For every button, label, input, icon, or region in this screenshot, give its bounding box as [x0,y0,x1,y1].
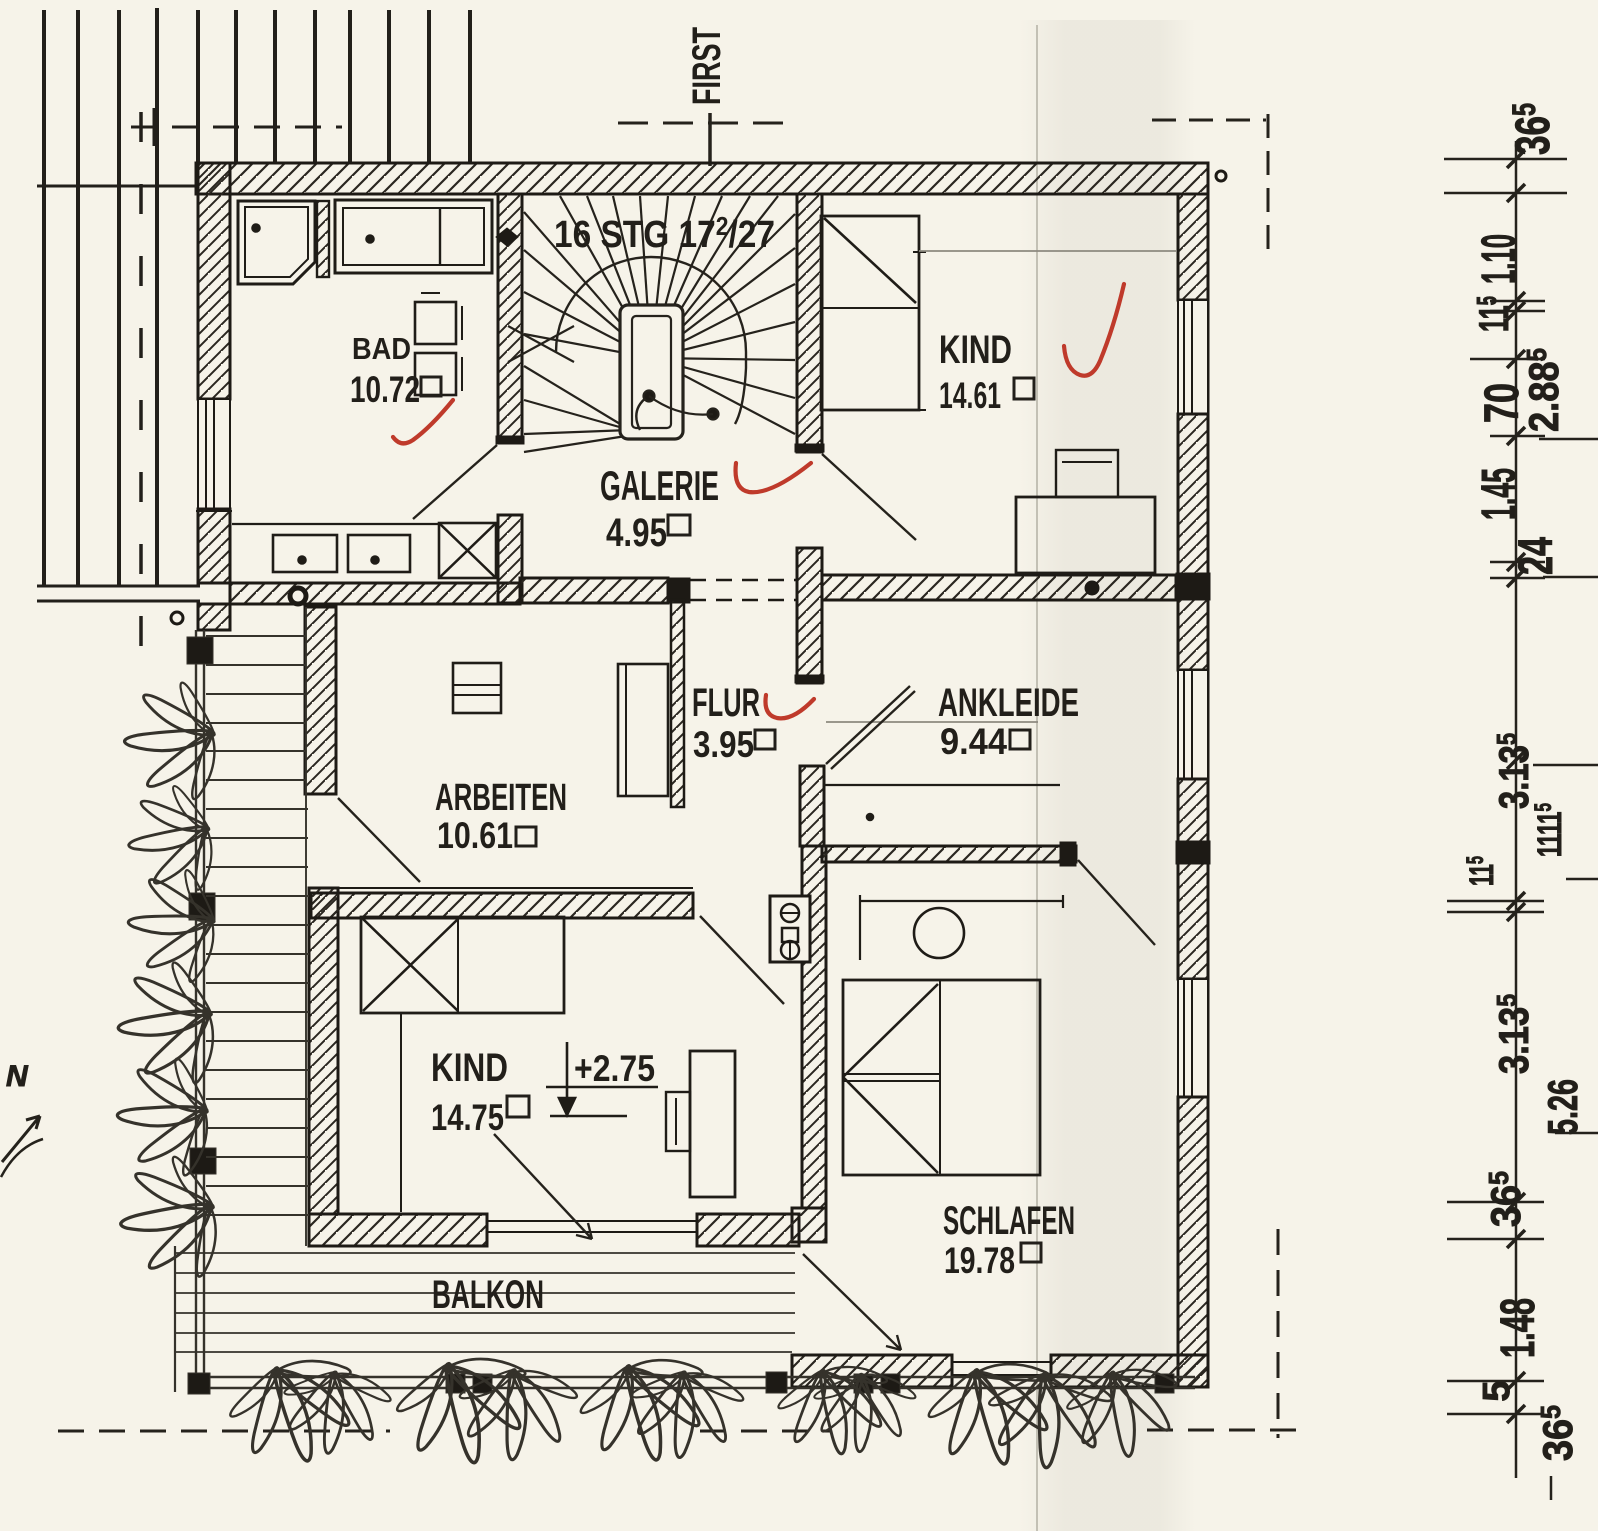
svg-text:16 STG 172/27: 16 STG 172/27 [554,211,775,256]
svg-text:SCHLAFEN: SCHLAFEN [943,1199,1075,1243]
svg-text:14.61: 14.61 [939,375,1001,416]
svg-text:1.10: 1.10 [1473,234,1526,284]
svg-text:FLUR: FLUR [692,681,760,725]
svg-text:KIND: KIND [939,328,1012,372]
svg-text:5: 5 [1476,1380,1518,1401]
svg-text:1.48: 1.48 [1492,1298,1545,1358]
svg-text:KIND: KIND [431,1046,508,1090]
svg-text:ANKLEIDE: ANKLEIDE [938,681,1079,725]
svg-text:9.44: 9.44 [940,721,1007,762]
svg-text:N: N [6,1060,29,1093]
svg-text:10.72: 10.72 [350,369,420,410]
svg-text:19.78: 19.78 [944,1240,1015,1281]
svg-text:FIRST: FIRST [685,27,729,105]
svg-text:5.26: 5.26 [1539,1079,1586,1135]
svg-text:ARBEITEN: ARBEITEN [435,777,567,819]
svg-text:1.45: 1.45 [1473,468,1526,520]
svg-text:4.95: 4.95 [606,511,667,555]
svg-text:24: 24 [1510,537,1563,575]
svg-text:3.95: 3.95 [693,724,754,765]
svg-text:14.75: 14.75 [431,1097,504,1138]
svg-text:10.61: 10.61 [437,815,513,856]
svg-text:BAD: BAD [352,331,411,366]
svg-text:BALKON: BALKON [432,1273,544,1317]
svg-text:+2.75: +2.75 [574,1048,655,1089]
svg-text:GALERIE: GALERIE [600,462,719,509]
